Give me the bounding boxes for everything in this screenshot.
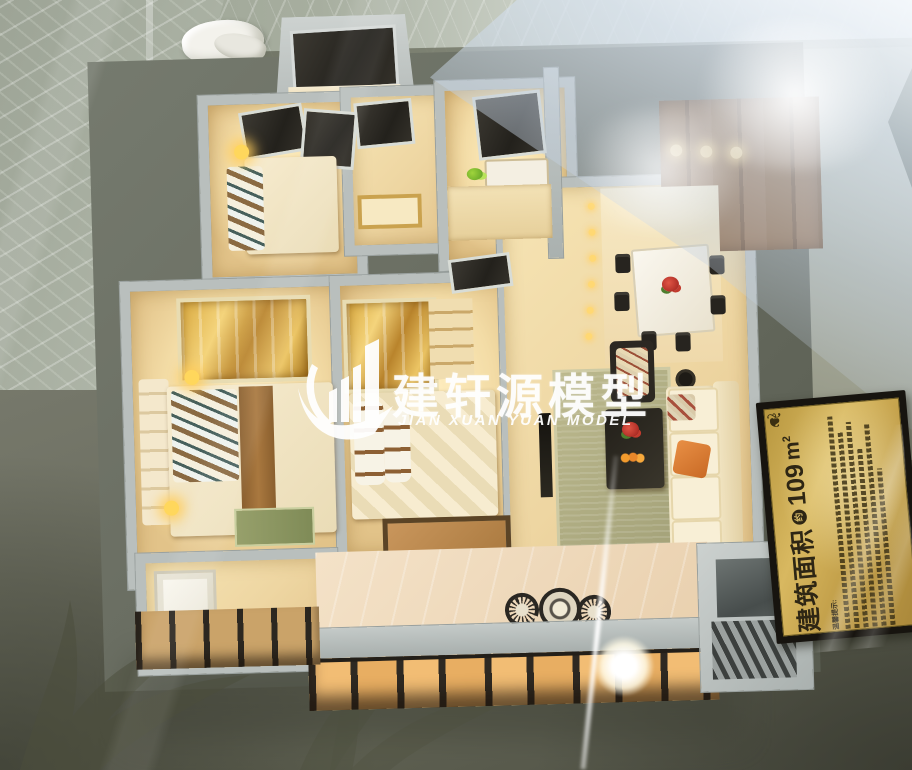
watermark-company-en: JIAN XUAN YUAN MODEL	[398, 412, 634, 429]
plaque-fine-print: 温馨提示:	[812, 402, 895, 631]
bay-window-pane	[290, 24, 400, 93]
bath-door-frame	[357, 194, 422, 230]
plaque-gold-face: ❦ 建筑面积 约 109 m2 温馨提示:	[763, 398, 912, 637]
master-bed-pillows	[171, 389, 240, 483]
sofa-cushion	[670, 475, 721, 520]
bed-foot-rug	[234, 507, 315, 547]
small-bed-pillows	[227, 166, 265, 251]
south-facade-windows	[308, 647, 719, 710]
dining-chair	[710, 295, 726, 314]
dining-chair	[615, 254, 631, 273]
watermark: 建轩源模型 JIAN XUAN YUAN MODEL	[296, 330, 656, 450]
dining-chair	[614, 292, 630, 311]
kitchen-window	[472, 89, 547, 160]
model-showcase-photo: ❦ 建筑面积 约 109 m2 温馨提示:	[0, 0, 912, 770]
sofa-pillow	[667, 394, 696, 421]
dining-chair	[709, 255, 725, 274]
area-label: 建筑面积	[782, 527, 827, 634]
plaque-text-block: 建筑面积 约 109 m2 温馨提示:	[767, 400, 912, 634]
area-value: 109	[780, 463, 813, 507]
building-swoosh-icon	[296, 330, 396, 446]
fruit-bowl	[619, 451, 645, 464]
area-sup: 2	[781, 435, 793, 442]
west-facade-windows	[135, 607, 321, 670]
orange-throw	[672, 439, 712, 479]
kitchen-counter	[447, 184, 552, 241]
area-plaque: ❦ 建筑面积 约 109 m2 温馨提示:	[756, 390, 912, 644]
approx-badge: 约	[791, 509, 807, 525]
dining-chair	[675, 332, 691, 351]
bath-mirror	[353, 98, 415, 149]
area-unit: m2	[780, 434, 806, 461]
